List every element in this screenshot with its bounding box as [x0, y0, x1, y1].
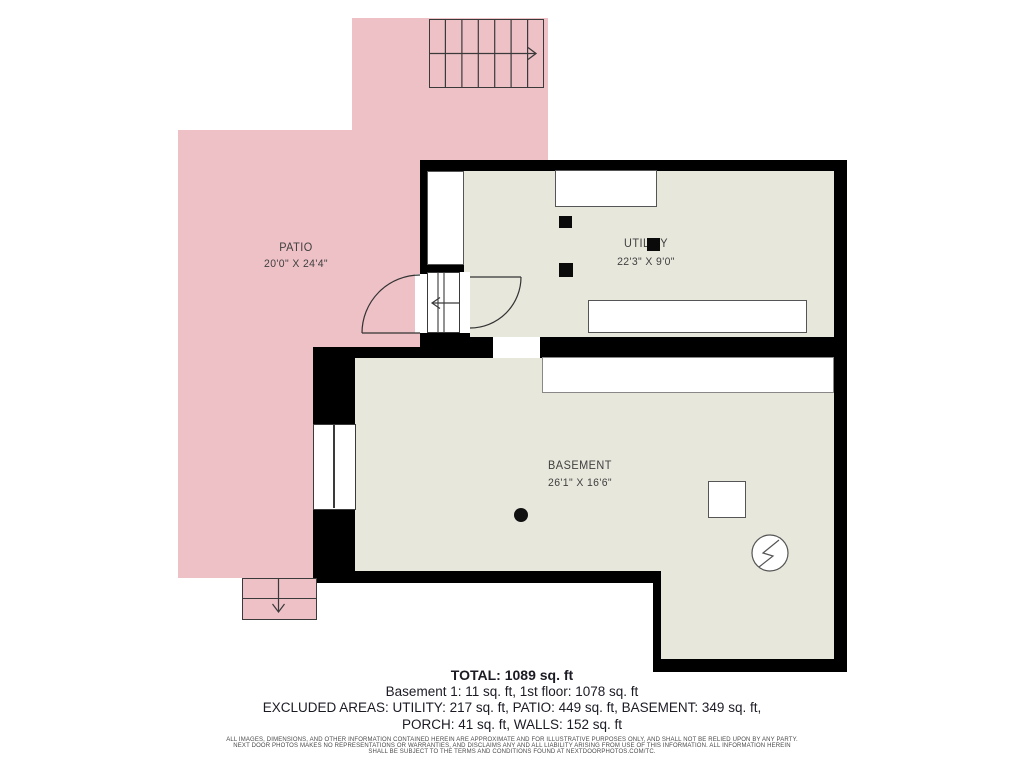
total-area-line: TOTAL: 1089 sq. ft: [0, 667, 1024, 684]
patio-label: PATIO: [279, 242, 313, 254]
wall-middle-band: [420, 337, 836, 358]
basement-label: BASEMENT: [548, 460, 612, 472]
patio-dimensions: 20'0" X 24'4": [264, 258, 328, 270]
excluded-areas-line-1: EXCLUDED AREAS: UTILITY: 217 sq. ft, PAT…: [0, 700, 1024, 717]
wall-right: [834, 160, 847, 672]
support-post-2: [559, 263, 573, 277]
window-divider: [333, 425, 335, 508]
disclaimer-text: ALL IMAGES, DIMENSIONS, AND OTHER INFORM…: [0, 737, 1024, 756]
utility-label: UTILITY: [624, 238, 668, 250]
utility-bottom-fixture: [588, 300, 807, 333]
wall-stair-separator: [420, 265, 464, 272]
excluded-areas-line-2: PORCH: 41 sq. ft, WALLS: 152 sq. ft: [0, 717, 1024, 734]
stairs-down: [427, 272, 460, 333]
disclaimer-line-3: SHALL BE SUBJECT TO THE TERMS AND CONDIT…: [0, 749, 1024, 755]
utility-top-fixture: [555, 170, 657, 207]
area-summary: TOTAL: 1089 sq. ft Basement 1: 11 sq. ft…: [0, 667, 1024, 733]
patio-area-band: [178, 130, 548, 160]
support-post-over-label: [647, 238, 660, 251]
wall-basement-bottom-left: [313, 571, 661, 583]
stairwell-landing: [427, 171, 464, 265]
basement-top-fixture: [542, 357, 834, 393]
floors-area-line: Basement 1: 11 sq. ft, 1st floor: 1078 s…: [0, 684, 1024, 701]
porch-steps: [242, 578, 317, 620]
stair-utility-doorway-gap: [460, 272, 470, 333]
basement-square-fixture: [708, 481, 746, 518]
basement-dimensions: 26'1" X 16'6": [548, 477, 612, 489]
basement-floor-right: [661, 358, 834, 659]
floor-plan-canvas: PATIO 20'0" X 24'4" UTILITY 22'3" X 9'0"…: [0, 0, 1024, 768]
utility-basement-doorway-gap: [493, 337, 540, 358]
utility-dimensions: 22'3" X 9'0": [617, 256, 675, 268]
patio-area-bottom: [178, 347, 313, 578]
support-post-1: [559, 216, 572, 228]
wall-basement-step: [653, 571, 661, 672]
porch-step-divider: [243, 598, 316, 599]
basement-window: [313, 424, 356, 510]
stairs-up: [429, 19, 544, 88]
